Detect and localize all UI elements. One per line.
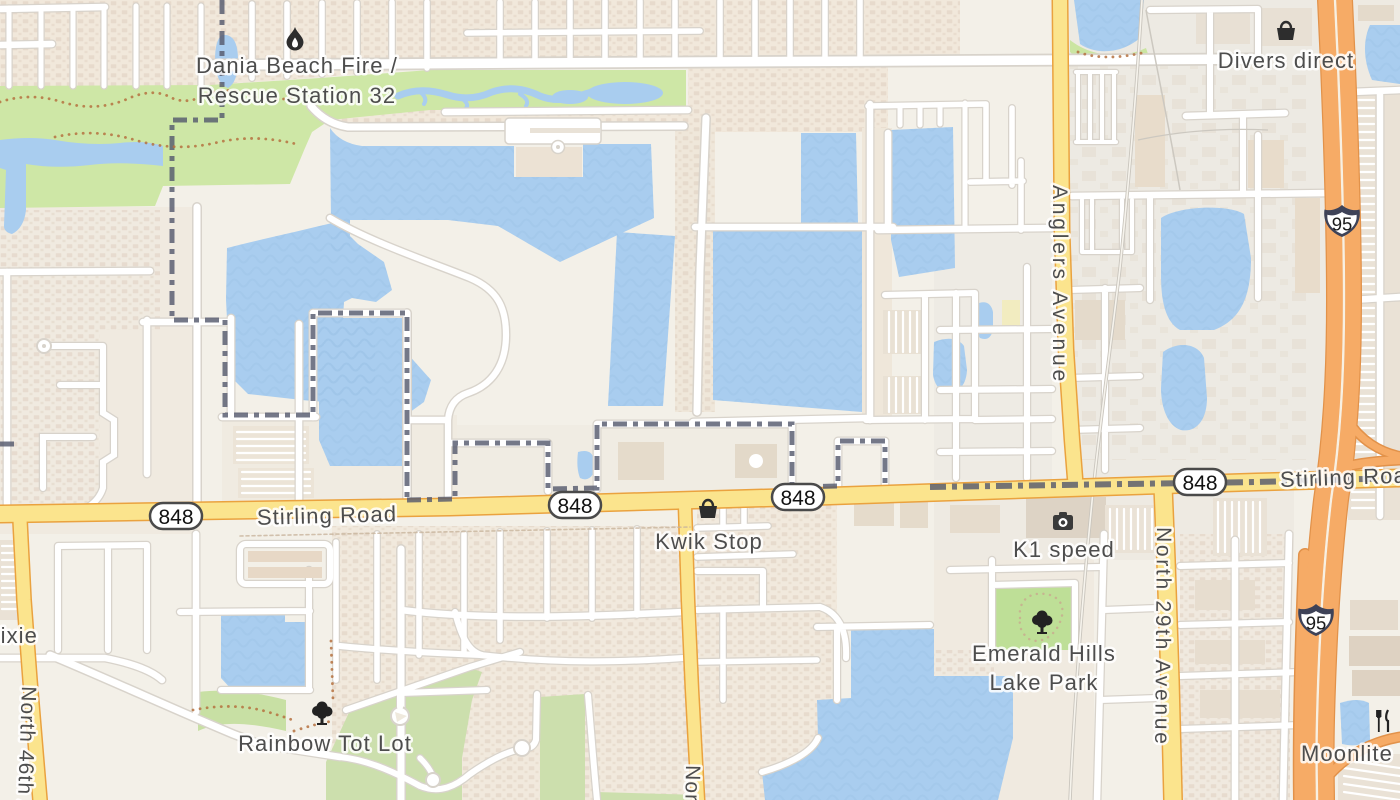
svg-text:848: 848 — [1182, 472, 1217, 495]
svg-text:Stirling Road: Stirling Road — [257, 501, 398, 530]
svg-text:Lake Park: Lake Park — [990, 670, 1099, 695]
svg-text:Anglers Avenue: Anglers Avenue — [1048, 185, 1071, 385]
svg-text:Rainbow Tot Lot: Rainbow Tot Lot — [238, 731, 412, 756]
svg-text:Divers direct: Divers direct — [1218, 48, 1355, 73]
svg-text:Dania Beach Fire /: Dania Beach Fire / — [196, 53, 398, 78]
svg-text:848: 848 — [780, 487, 815, 510]
svg-text:Emerald Hills: Emerald Hills — [972, 641, 1116, 666]
svg-text:848: 848 — [557, 495, 592, 518]
svg-text:Rescue Station 32: Rescue Station 32 — [198, 83, 396, 108]
svg-text:K1 speed: K1 speed — [1013, 537, 1115, 562]
svg-text:Moonlite: Moonlite — [1301, 741, 1393, 766]
svg-text:95: 95 — [1306, 613, 1327, 634]
svg-text:North 29th Avenue: North 29th Avenue — [1150, 527, 1175, 747]
svg-text:Stirling Roa: Stirling Roa — [1280, 463, 1400, 492]
svg-text:95: 95 — [1332, 214, 1353, 235]
svg-text:Kwik Stop: Kwik Stop — [655, 529, 763, 554]
svg-text:848: 848 — [158, 506, 193, 529]
svg-text:Dixie: Dixie — [0, 623, 38, 648]
svg-text:North 6: North 6 — [680, 765, 704, 800]
